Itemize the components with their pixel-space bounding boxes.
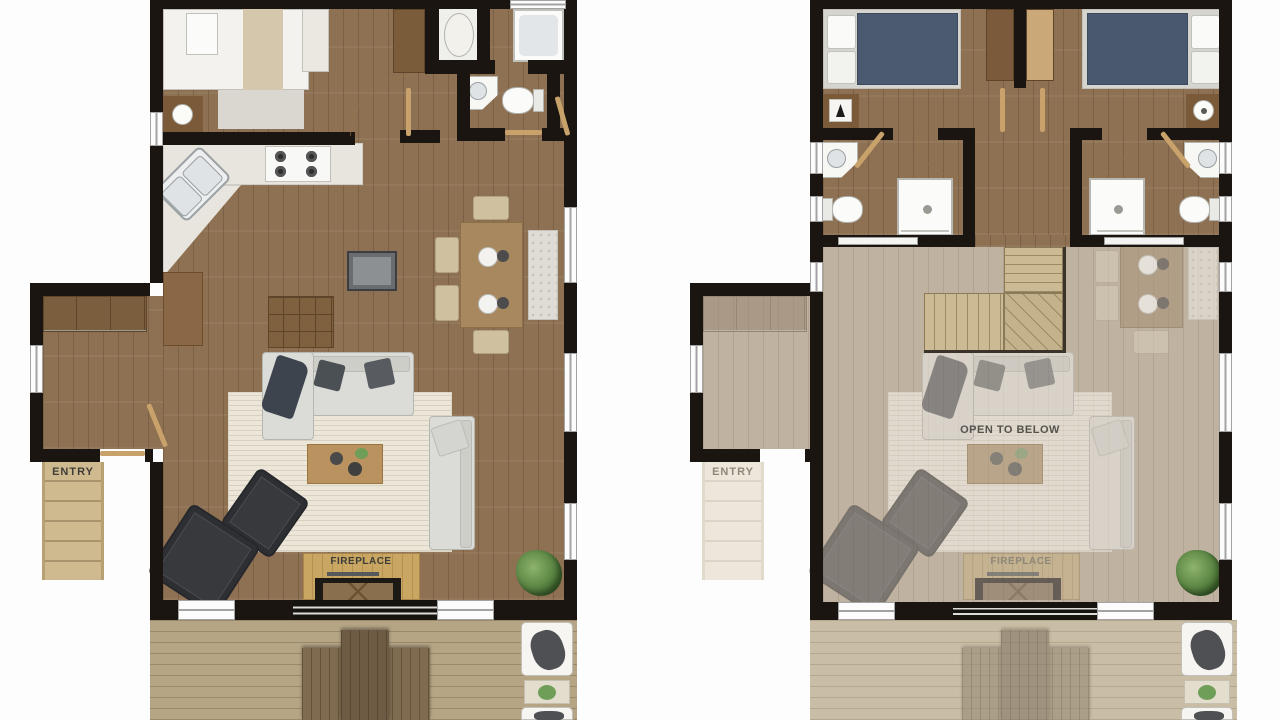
place-cup	[497, 297, 509, 309]
fireplace-inner	[983, 583, 1053, 600]
entry-stairs-faded	[702, 462, 764, 580]
tv-unit	[347, 251, 397, 291]
fireplace-box-faded	[975, 578, 1061, 600]
sofa-pillow	[363, 357, 395, 389]
wall-entry	[30, 449, 100, 462]
wc-sink-basin	[469, 82, 487, 100]
wall-entry	[690, 283, 810, 296]
fireplace-box	[315, 578, 401, 600]
floor1-entry-label: ENTRY	[52, 466, 94, 478]
sofa-side	[429, 416, 475, 550]
wall-entry	[690, 449, 760, 462]
wall	[477, 0, 490, 60]
lounge-chair	[521, 707, 573, 720]
stove	[265, 146, 331, 182]
wall-hall-right	[1070, 128, 1082, 247]
nightstand-lamp	[172, 104, 193, 125]
bathtub-basin	[519, 15, 558, 56]
potted-plant	[1176, 550, 1222, 596]
bed-pillow	[186, 13, 218, 55]
glass-panel	[838, 237, 918, 245]
coffee-table-bowl	[330, 452, 343, 465]
deck-steps-center	[341, 630, 389, 720]
wall	[528, 60, 577, 74]
patio-sliding-door	[953, 602, 1097, 620]
coffee-table-bowl	[1008, 462, 1022, 476]
wall	[150, 462, 163, 602]
dining-chair-top	[473, 196, 509, 220]
coffee-table-bowl	[348, 462, 362, 476]
wall-bedroom-center	[1014, 0, 1026, 88]
dining-chair-faded	[1133, 330, 1169, 354]
staircase-winder	[1004, 293, 1063, 352]
wall-entry	[805, 449, 813, 462]
coffee-table-faded	[967, 444, 1043, 484]
window	[810, 142, 823, 174]
burner-icon	[275, 166, 286, 177]
wall	[542, 128, 577, 141]
lounge-cushion	[1187, 626, 1230, 674]
dining-chair-faded	[1095, 250, 1119, 283]
floorplan-canvas: FIREPLACE ENTRY	[0, 0, 1280, 720]
place-cup	[1157, 297, 1169, 309]
coffee-table-plant	[1015, 448, 1028, 459]
window	[178, 600, 235, 620]
wall-bedroom-divider	[163, 132, 355, 145]
fireplace-mantel-bar-faded	[987, 572, 1039, 576]
toilet	[502, 87, 534, 114]
floor2-entry-label: ENTRY	[712, 466, 754, 478]
deck-steps-center-faded	[1001, 630, 1049, 720]
lounge-chair	[521, 622, 573, 676]
burner-icon	[306, 166, 317, 177]
floor2-open-to-below-label: OPEN TO BELOW	[960, 424, 1060, 436]
lounge-cushion	[534, 711, 564, 720]
window	[810, 196, 823, 222]
tv-screen	[353, 257, 391, 285]
burner-icon	[306, 151, 317, 162]
window	[810, 262, 823, 292]
second-floor-plan: OPEN TO BELOW FIREPLACE ENTRY	[640, 0, 1280, 720]
dining-chair-faded	[1095, 285, 1119, 321]
window	[690, 345, 703, 393]
dining-bench	[528, 230, 558, 320]
lounge-cushion	[527, 626, 570, 674]
bathroom-sink	[444, 13, 474, 57]
entry-stairs	[42, 462, 104, 580]
bathtub	[513, 9, 564, 62]
lounge-cushion	[1194, 711, 1224, 720]
lounge-side-table	[1184, 680, 1230, 704]
patio-sliding-door	[293, 600, 437, 620]
door-bedroom-left	[1000, 88, 1005, 132]
shelf-cubby	[268, 296, 334, 348]
place-setting	[478, 247, 498, 267]
window	[30, 345, 43, 393]
window	[564, 353, 577, 432]
window	[1219, 503, 1232, 560]
dining-chair-left1	[435, 237, 459, 273]
window	[437, 600, 494, 620]
door-entry-outer	[100, 451, 145, 456]
sofa-pillow-faded	[1023, 357, 1055, 389]
wall-hall-left	[963, 128, 975, 247]
floor1-fireplace-label: FIREPLACE	[330, 556, 391, 567]
dining-chair-bottom	[473, 330, 509, 354]
coffee-table-plant	[355, 448, 368, 459]
lounge-side-table	[524, 680, 570, 704]
wall	[1147, 128, 1219, 140]
burner-icon	[275, 151, 286, 162]
coffee-table	[307, 444, 383, 484]
window	[1097, 602, 1154, 620]
table-plant	[1198, 685, 1216, 700]
coffee-table-bowl	[990, 452, 1003, 465]
window	[1219, 142, 1232, 174]
place-setting	[478, 294, 498, 314]
dining-bench-faded	[1188, 247, 1218, 320]
glass-panel	[1104, 237, 1184, 245]
door-wc	[505, 130, 542, 135]
staircase-upper-run	[1004, 247, 1063, 293]
sofa-side-faded	[1089, 416, 1135, 550]
fireplace-inner	[323, 583, 393, 600]
wall	[457, 74, 470, 128]
table-plant	[538, 685, 556, 700]
wall	[457, 128, 505, 141]
wall	[425, 60, 495, 74]
lounge-chair	[1181, 707, 1233, 720]
window	[1219, 196, 1232, 222]
window	[838, 602, 895, 620]
staircase-rail-edge	[1063, 247, 1066, 352]
wall-entry	[30, 283, 150, 296]
wall-entry	[145, 449, 153, 462]
first-floor-plan: FIREPLACE ENTRY	[0, 0, 640, 720]
lounge-chair	[1181, 622, 1233, 676]
entry-closet-faded	[703, 296, 807, 332]
dining-chair-left2	[435, 285, 459, 321]
place-cup	[497, 250, 509, 262]
toilet-tank	[533, 89, 544, 112]
window	[1219, 262, 1232, 292]
window	[564, 207, 577, 283]
staircase-lower-run	[924, 293, 1004, 352]
bed	[163, 9, 309, 90]
wall	[810, 0, 823, 602]
window	[510, 0, 566, 9]
potted-plant	[516, 550, 562, 596]
place-cup	[1157, 258, 1169, 270]
window	[564, 503, 577, 560]
place-setting	[1138, 294, 1158, 314]
place-setting	[1138, 255, 1158, 275]
window	[150, 112, 163, 146]
fireplace-mantel-bar	[327, 572, 379, 576]
window	[1219, 353, 1232, 432]
door-bedroom-right	[1040, 88, 1045, 132]
bed-blanket	[243, 9, 283, 90]
entry-closet	[43, 296, 147, 332]
kitchen-low-cabinet	[163, 272, 203, 346]
bedroom-dresser	[302, 9, 329, 72]
floor2-fireplace-label: FIREPLACE	[990, 556, 1051, 567]
bedroom-wardrobe	[393, 9, 425, 73]
staircase-rail-edge	[924, 350, 1066, 353]
